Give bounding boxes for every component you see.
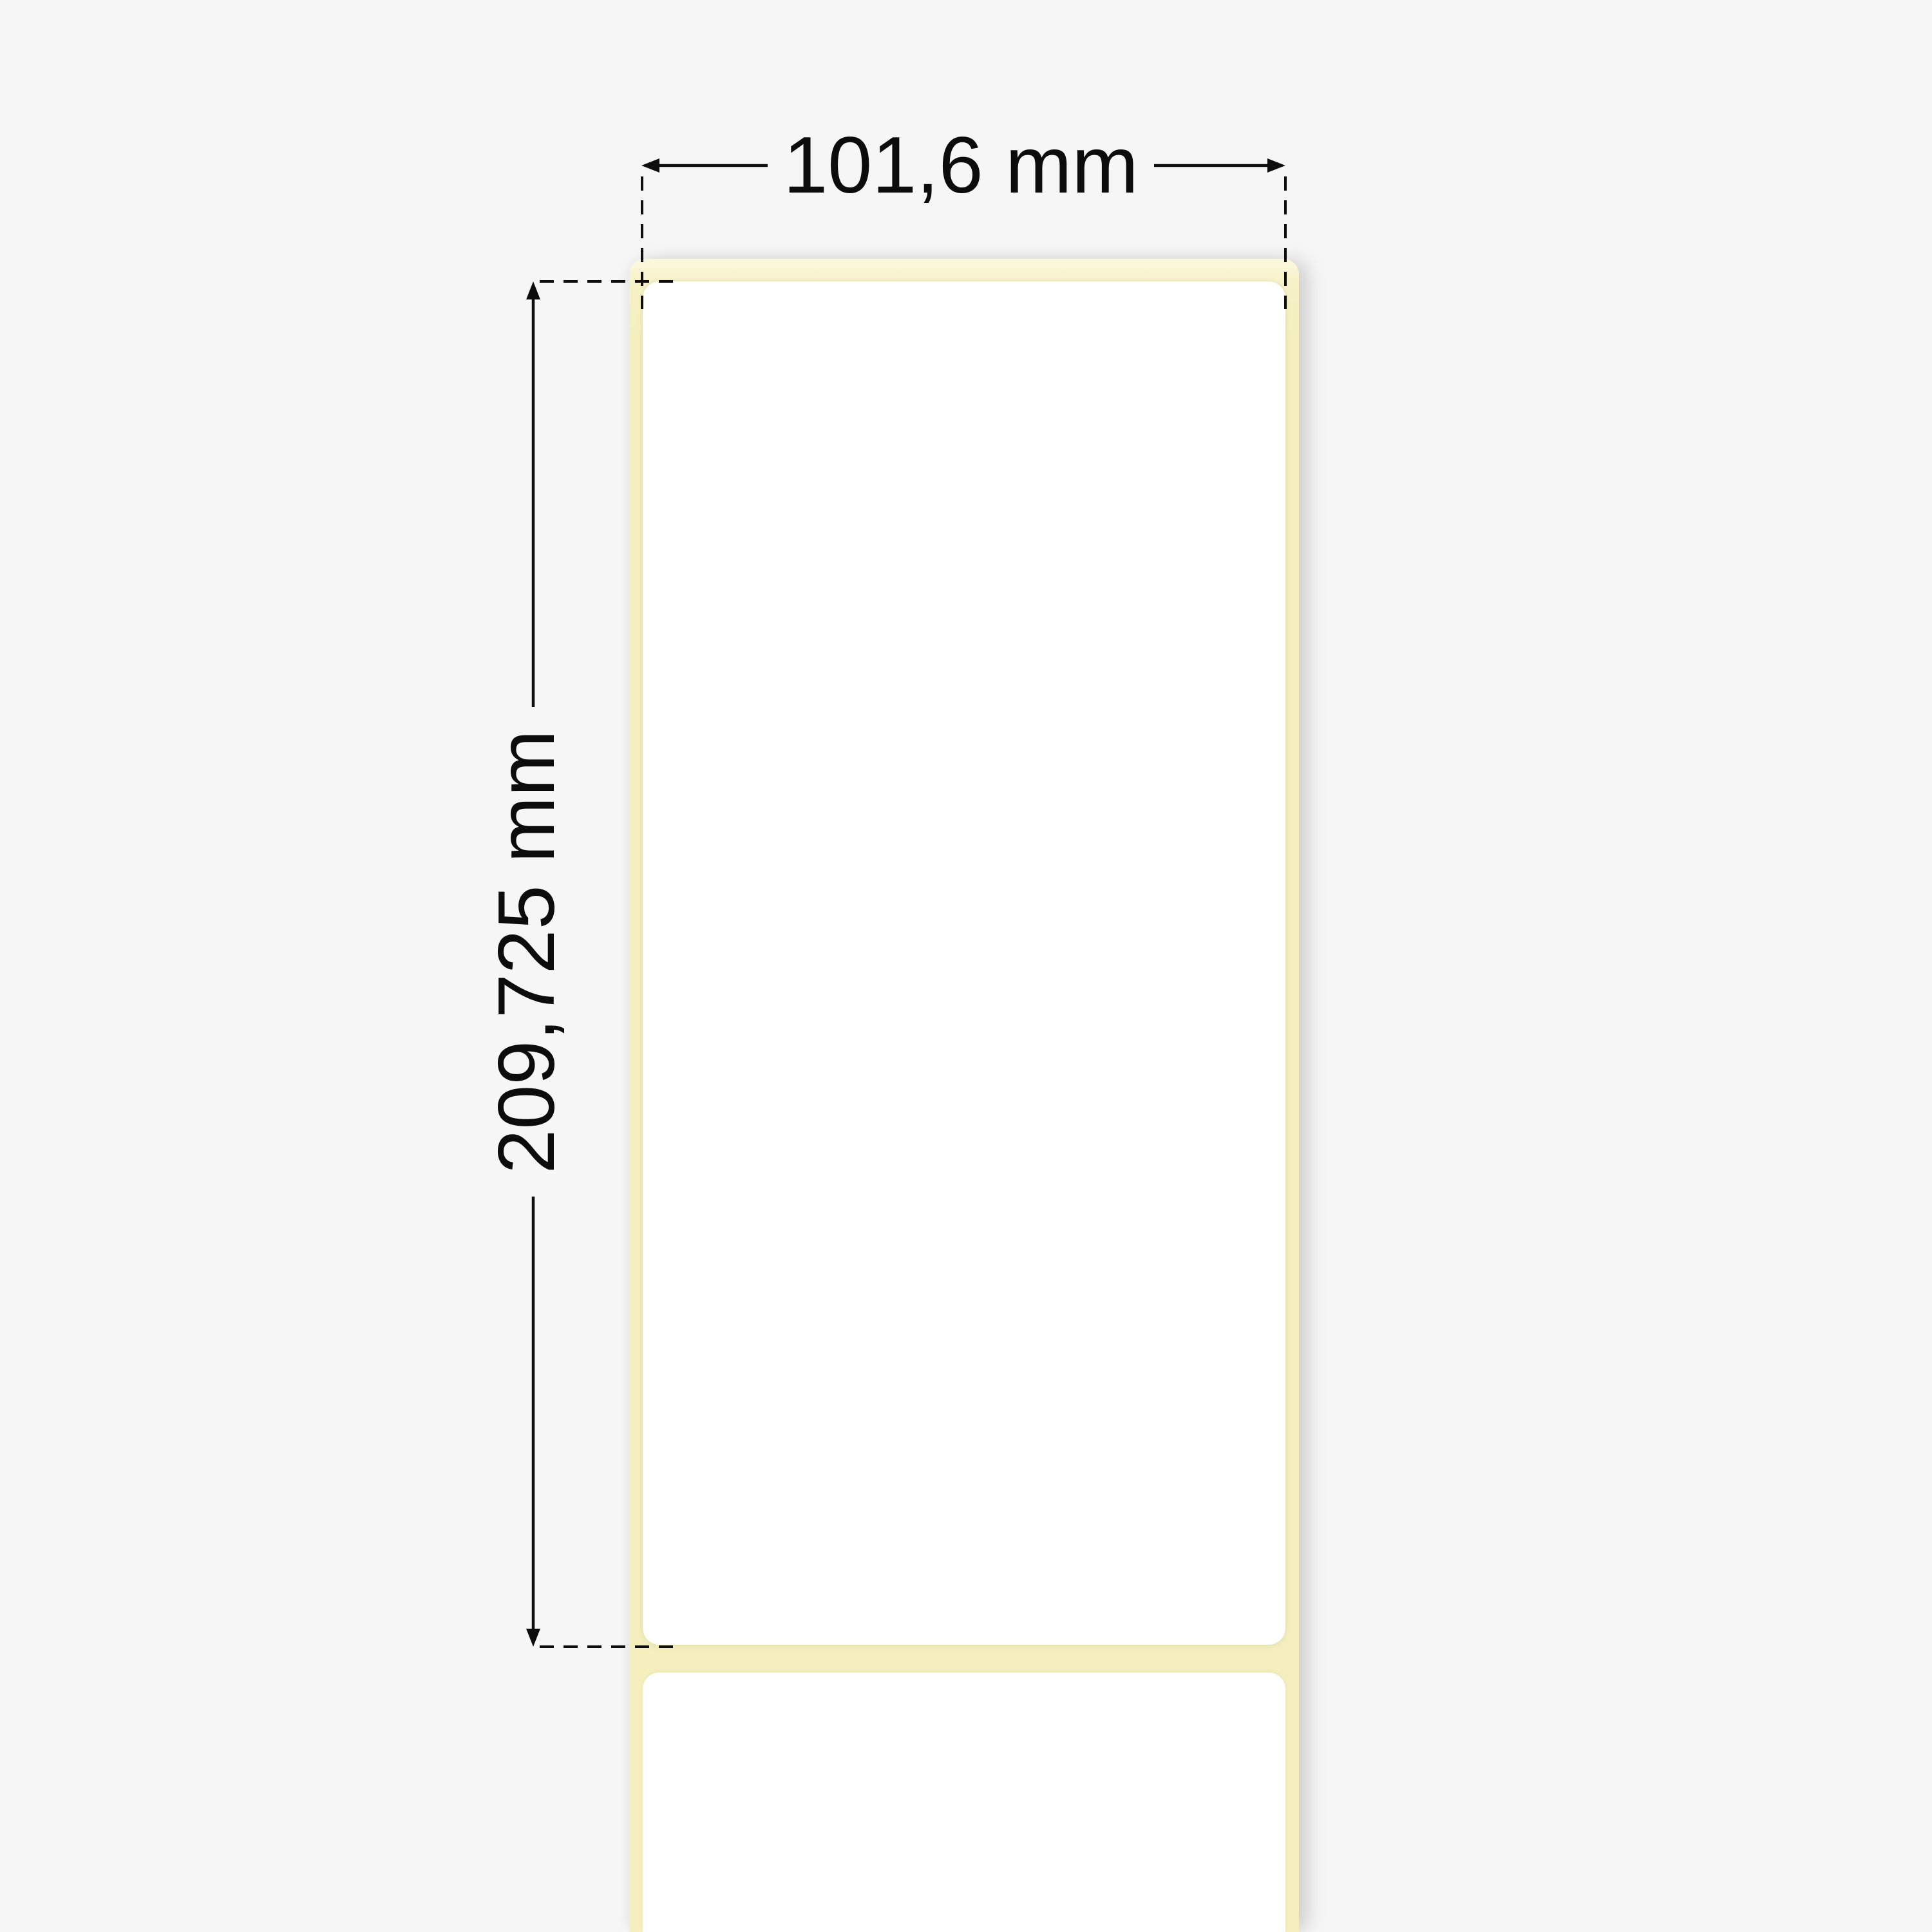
- label-dimension-diagram: { "dimensions": { "width_label": "101,6 …: [0, 0, 1932, 1932]
- width-dimension-label: 101,6 mm: [783, 121, 1138, 210]
- height-dimension: 209,725 mm: [482, 281, 675, 1647]
- width-dimension: 101,6 mm: [641, 121, 1285, 309]
- height-arrow-up-icon: [526, 281, 540, 299]
- dimension-annotation-layer: 101,6 mm 209,725 mm: [0, 0, 1932, 1932]
- height-arrow-down-icon: [526, 1629, 540, 1647]
- width-arrow-left-icon: [641, 158, 659, 173]
- width-arrow-right-icon: [1267, 158, 1285, 173]
- height-dimension-label: 209,725 mm: [482, 730, 571, 1173]
